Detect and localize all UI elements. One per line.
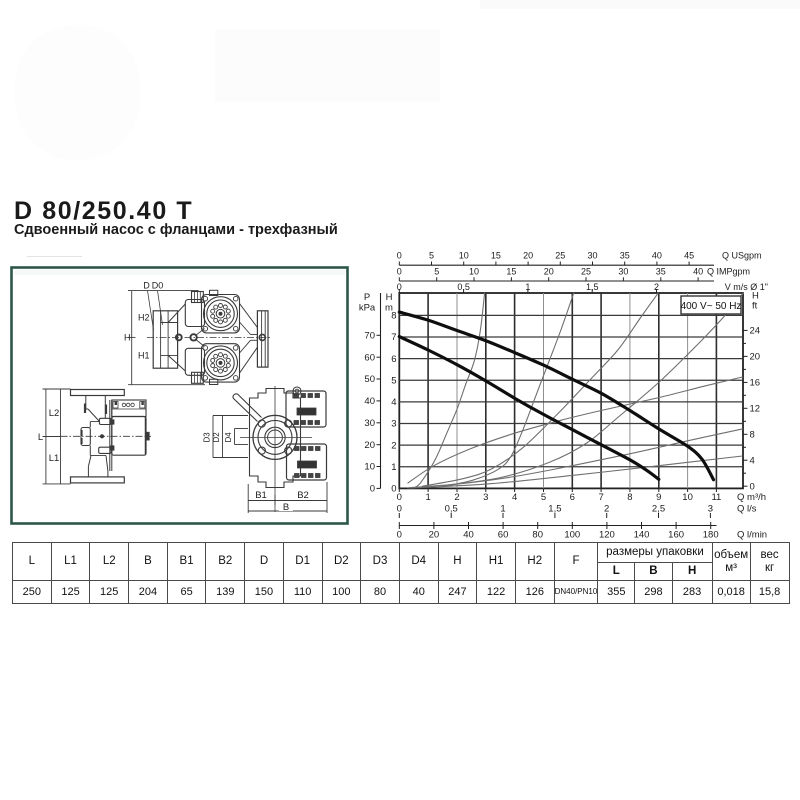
svg-text:60: 60 [364,352,375,363]
svg-text:D2: D2 [212,432,221,442]
svg-text:15: 15 [491,251,501,261]
svg-text:40: 40 [693,267,703,277]
svg-text:30: 30 [587,251,597,261]
svg-text:0: 0 [397,251,402,261]
svg-text:D3: D3 [203,432,212,442]
svg-text:H1: H1 [138,351,150,361]
svg-text:0,5: 0,5 [445,504,458,515]
svg-text:3: 3 [483,492,488,503]
svg-text:25: 25 [581,267,591,277]
svg-text:V m/s Ø 1": V m/s Ø 1" [725,282,768,292]
svg-text:40: 40 [652,251,662,261]
svg-text:5: 5 [429,251,434,261]
svg-text:80: 80 [532,530,543,541]
svg-text:Q USgpm: Q USgpm [722,251,762,261]
svg-text:60: 60 [498,530,509,541]
svg-text:2: 2 [391,440,396,451]
svg-text:B2: B2 [297,490,309,501]
svg-text:10: 10 [682,492,693,503]
svg-text:40: 40 [463,530,474,541]
svg-text:0,5: 0,5 [457,282,470,292]
svg-text:20: 20 [750,352,761,363]
svg-text:400 V~ 50 Hz: 400 V~ 50 Hz [681,301,742,312]
svg-text:8: 8 [750,430,755,441]
svg-text:Q l/s: Q l/s [737,504,757,515]
svg-text:0: 0 [397,267,402,277]
svg-text:0: 0 [397,504,402,515]
svg-text:H2: H2 [138,313,150,323]
svg-text:10: 10 [459,251,469,261]
svg-text:120: 120 [599,530,615,541]
svg-text:50: 50 [364,374,375,385]
svg-text:7: 7 [598,492,603,503]
svg-text:100: 100 [564,530,580,541]
svg-text:11: 11 [711,492,721,503]
svg-text:D0: D0 [152,281,164,291]
svg-text:5: 5 [391,375,396,386]
svg-text:D4: D4 [224,432,233,443]
svg-text:3: 3 [708,504,713,515]
svg-text:25: 25 [555,251,565,261]
svg-text:2: 2 [654,282,659,292]
svg-text:1,5: 1,5 [586,282,599,292]
svg-text:24: 24 [750,326,761,337]
svg-text:Q m³/h: Q m³/h [737,492,766,503]
svg-text:5: 5 [541,492,546,503]
svg-text:L1: L1 [49,453,60,464]
svg-text:1: 1 [525,282,530,292]
svg-text:2: 2 [604,504,609,515]
svg-text:10: 10 [469,267,479,277]
svg-text:ft: ft [752,301,758,312]
svg-text:4: 4 [750,455,755,466]
svg-text:0: 0 [370,484,375,495]
svg-text:4: 4 [512,492,517,503]
svg-text:20: 20 [523,251,533,261]
svg-text:P: P [364,292,370,303]
svg-text:9: 9 [656,492,661,503]
svg-text:0: 0 [397,492,402,503]
svg-text:35: 35 [620,251,630,261]
svg-text:140: 140 [634,530,650,541]
svg-text:kPa: kPa [359,303,376,314]
svg-text:0: 0 [750,481,755,492]
svg-text:40: 40 [364,396,375,407]
svg-text:30: 30 [364,418,375,429]
svg-text:1: 1 [425,492,430,503]
svg-text:Q IMPgpm: Q IMPgpm [707,267,750,277]
svg-text:10: 10 [364,462,375,473]
svg-text:1: 1 [500,504,505,515]
svg-text:2: 2 [454,492,459,503]
svg-text:B1: B1 [255,490,267,501]
svg-text:0: 0 [397,282,402,292]
svg-text:L2: L2 [49,408,60,419]
svg-text:5: 5 [434,267,439,277]
svg-text:3: 3 [391,419,396,430]
svg-text:16: 16 [750,378,761,389]
svg-text:15: 15 [506,267,516,277]
svg-text:B: B [283,502,289,513]
svg-text:35: 35 [656,267,666,277]
svg-text:20: 20 [544,267,554,277]
svg-text:1,5: 1,5 [548,504,561,515]
svg-text:0: 0 [397,530,402,541]
svg-text:180: 180 [703,530,719,541]
svg-text:H: H [124,333,131,343]
svg-text:4: 4 [391,397,396,408]
svg-text:2,5: 2,5 [652,504,665,515]
svg-text:45: 45 [684,251,694,261]
svg-text:D: D [143,281,150,291]
svg-text:7: 7 [391,332,396,343]
svg-text:H: H [386,292,393,303]
svg-text:160: 160 [668,530,684,541]
svg-text:m: m [385,303,393,314]
svg-text:12: 12 [750,404,761,415]
svg-text:L: L [38,432,43,443]
svg-text:Q l/min: Q l/min [737,530,767,541]
svg-text:8: 8 [627,492,632,503]
svg-text:6: 6 [570,492,575,503]
svg-text:6: 6 [391,354,396,365]
svg-text:70: 70 [364,331,375,342]
svg-text:20: 20 [429,530,440,541]
svg-text:30: 30 [618,267,628,277]
svg-text:1: 1 [391,462,396,473]
svg-text:20: 20 [364,440,375,451]
